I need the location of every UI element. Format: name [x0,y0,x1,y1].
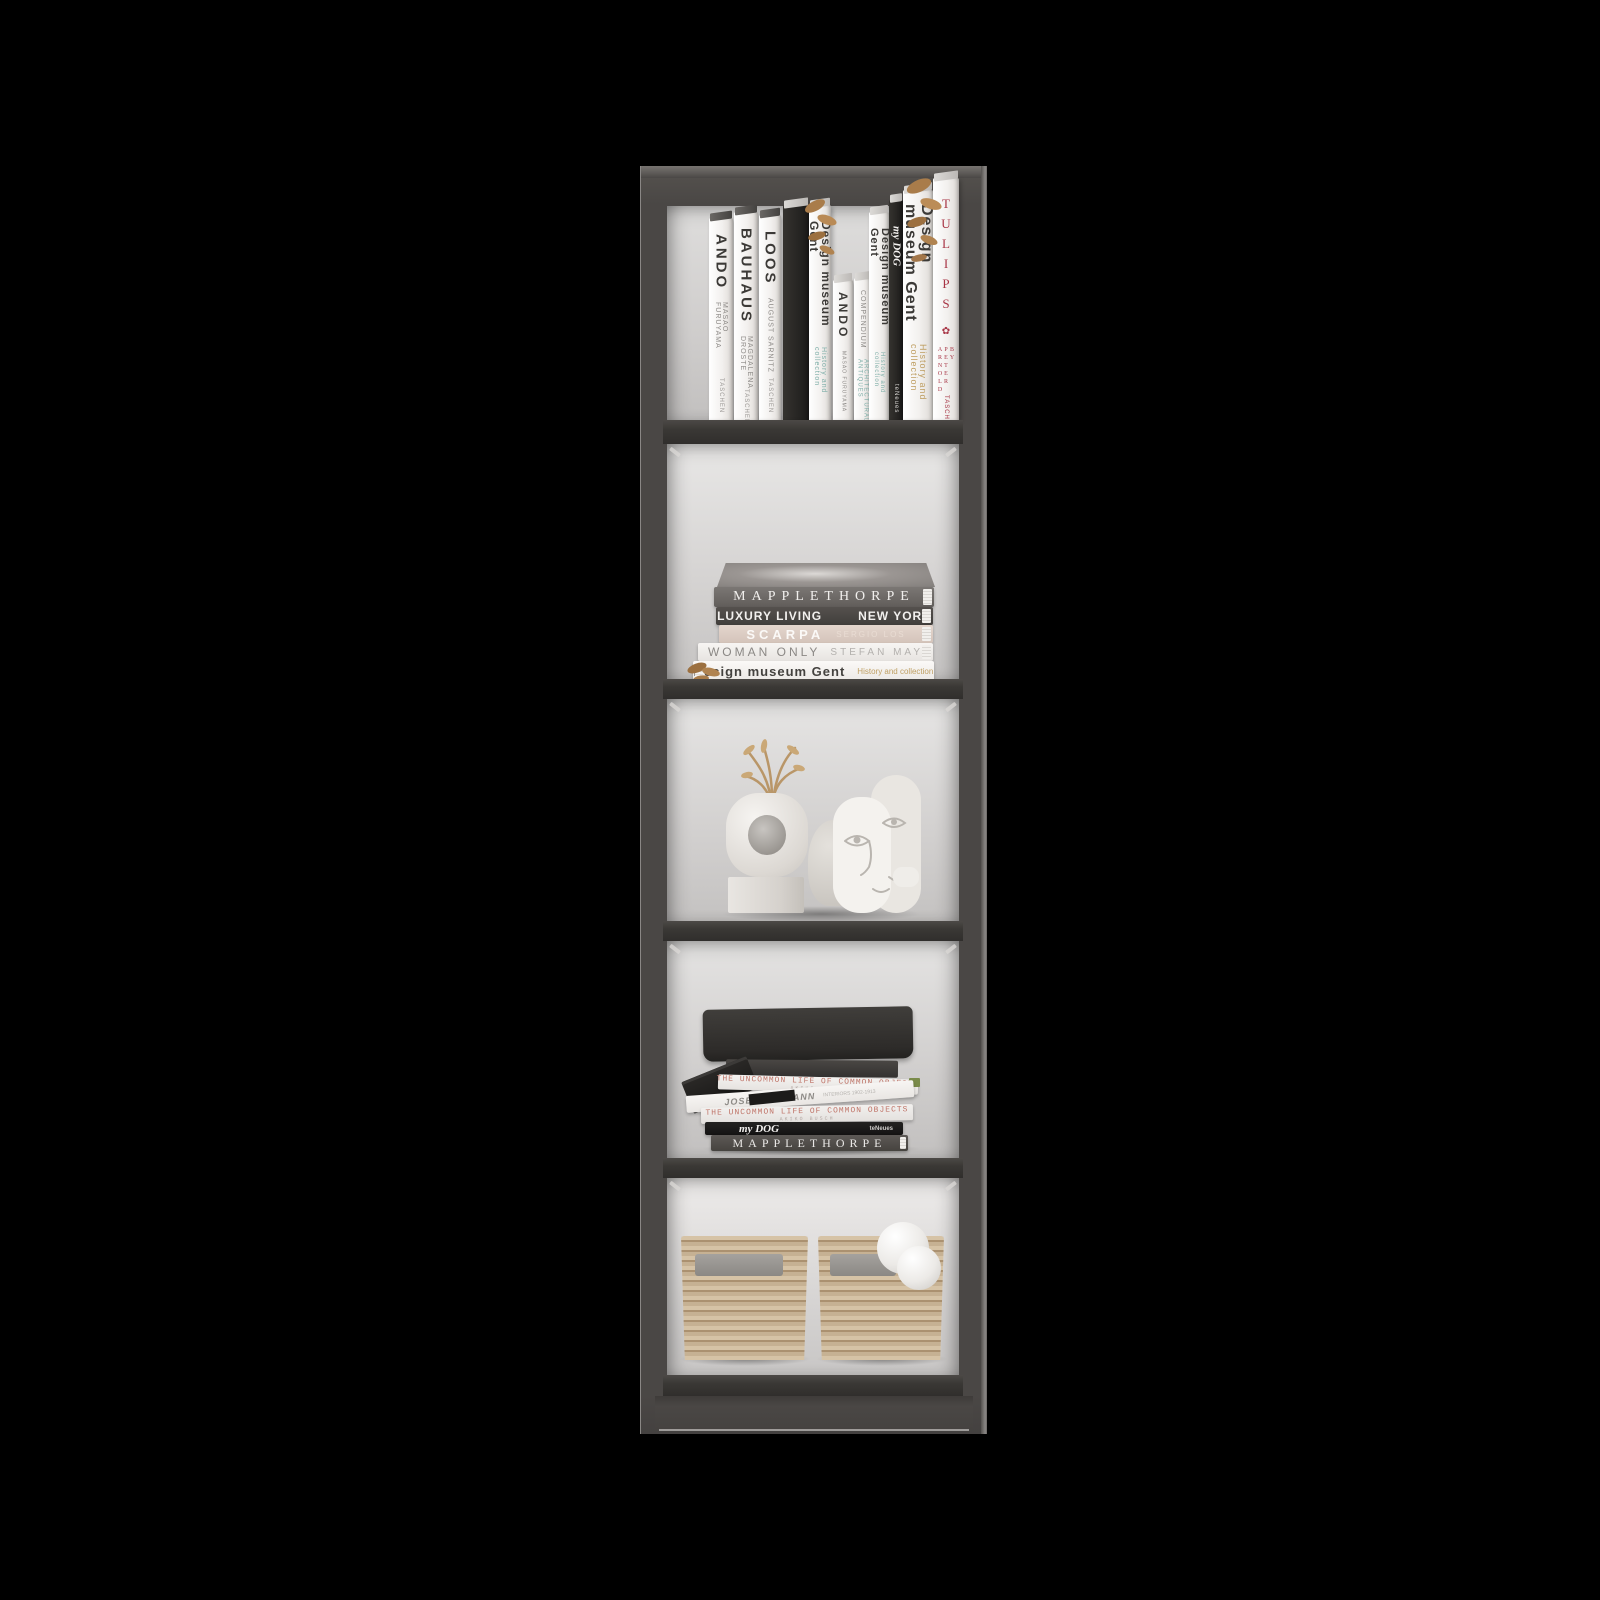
book-subtitle: NEW YORK [858,609,932,623]
bookcase: ANDO MASAO FURUYAMA TASCHEN BAUHAUS MAGD… [640,166,987,1434]
book-author: AKIKO BUSCH [780,1115,835,1122]
book-spine-ando-small: ANDO MASAO FURUYAMA [833,280,853,420]
stacked-book-large-dark [703,1006,914,1062]
book-title: LOOS [763,231,778,286]
stacked-book-mapplethorpe: MAPPLETHORPE [714,587,934,607]
book-title: ANDO [714,234,729,290]
page-block [923,589,932,605]
book-top-edge [735,204,757,215]
stacked-book-mapplethorpe-2: MAPPLETHORPE [711,1135,908,1151]
book-spine-bauhaus: BAUHAUS MAGDALENA DROSTE TASCHEN [734,212,758,420]
shelf-board-2 [663,679,963,699]
shelf-pin [945,944,957,955]
shelf-board-1 [663,420,963,444]
stacked-book-scarpa: SCARPA SERGIO LOS [719,625,933,643]
book-title: MAPPLETHORPE [733,589,915,605]
book-title: BAUHAUS [739,228,754,324]
storage-basket-left [681,1236,808,1360]
shelf-pin [945,1181,957,1192]
book-spine-design-museum-2: Design museum Gent History and collectio… [869,212,889,420]
stacked-book-luxury-living: LUXURY LIVING NEW YORK [716,607,933,625]
folded-cloth [695,1254,783,1276]
shelf-pin [669,944,681,955]
book-publisher: TASCHEN [743,389,749,424]
book-title: ANDO [837,292,849,339]
book-subtitle: INTERIORS 1902-1913 [823,1088,876,1098]
book-top-edge [870,205,888,216]
book-spine-ando: ANDO MASAO FURUYAMA TASCHEN [709,218,733,420]
book-top-cover [717,563,935,587]
shelf-board-3 [663,921,963,941]
shelf-pin [669,447,681,458]
dried-leaf-decor [801,194,847,264]
tulip-icon: ✿ [942,326,950,337]
book-subtitle: History and collection [857,667,933,676]
book-subtitle: ARCHITECTURAL ANTIQUES [857,359,869,422]
page-block [922,645,931,659]
book-author: SERGIO LOS [836,630,905,639]
book-title: SCARPA [746,627,824,642]
shelf-pin [669,702,681,713]
book-top-edge [710,210,732,221]
book-publisher: teNeues [893,384,899,413]
plinth [655,1396,973,1430]
stacked-book-my-dog: my DOG teNeues [705,1122,903,1135]
shelf-pin [945,447,957,458]
book-author: AUGUST SARNITZ [767,298,774,373]
bookcase-right-edge [981,166,987,1434]
book-subtitle: History and collection [813,347,827,420]
shelf-pin [669,1181,681,1192]
book-publisher: teNeues [870,1126,893,1132]
decorative-sphere-small [897,1246,941,1290]
book-title: COMPENDIUM [859,290,866,349]
book-author: STEFAN MAY [830,647,923,658]
donut-vase-hole [748,815,786,855]
page-block [900,1137,906,1149]
book-top-edge [834,273,852,284]
book-title: my DOG [739,1123,779,1135]
book-spine-loos: LOOS AUGUST SARNITZ TASCHEN [759,215,781,420]
stacked-book-design-museum: Design museum Gent History and collectio… [693,661,934,681]
page-block [922,627,931,641]
book-author: MAGDALENA DROSTE [739,336,753,389]
floor-reflection-line [659,1429,969,1431]
book-author: MASAO FURUYAMA [714,302,728,378]
page-block [922,609,931,623]
book-author: MASAO FURUYAMA [841,351,846,412]
book-publisher: TASCHEN [767,378,773,413]
book-title: MAPPLETHORPE [732,1136,886,1151]
book-subtitle: History and collection [909,344,927,420]
book-title: Design museum Gent [868,228,890,342]
book-author: BY PETER ARNOLD [937,347,955,395]
stacked-book-woman-only: WOMAN ONLY STEFAN MAY [698,643,933,661]
book-top-edge [760,208,780,219]
shelf-board-4 [663,1158,963,1178]
book-title: LUXURY LIVING [717,609,822,623]
book-subtitle: History and collection [873,352,885,420]
bottom-board [663,1375,963,1396]
face-sculpture [831,771,923,913]
vase-pedestal [728,877,804,913]
book-publisher: TASCHEN [718,378,724,413]
shelf-pin [945,702,957,713]
product-photo-stage: ANDO MASAO FURUYAMA TASCHEN BAUHAUS MAGD… [0,0,1600,1600]
dried-leaf-decor [899,174,949,274]
